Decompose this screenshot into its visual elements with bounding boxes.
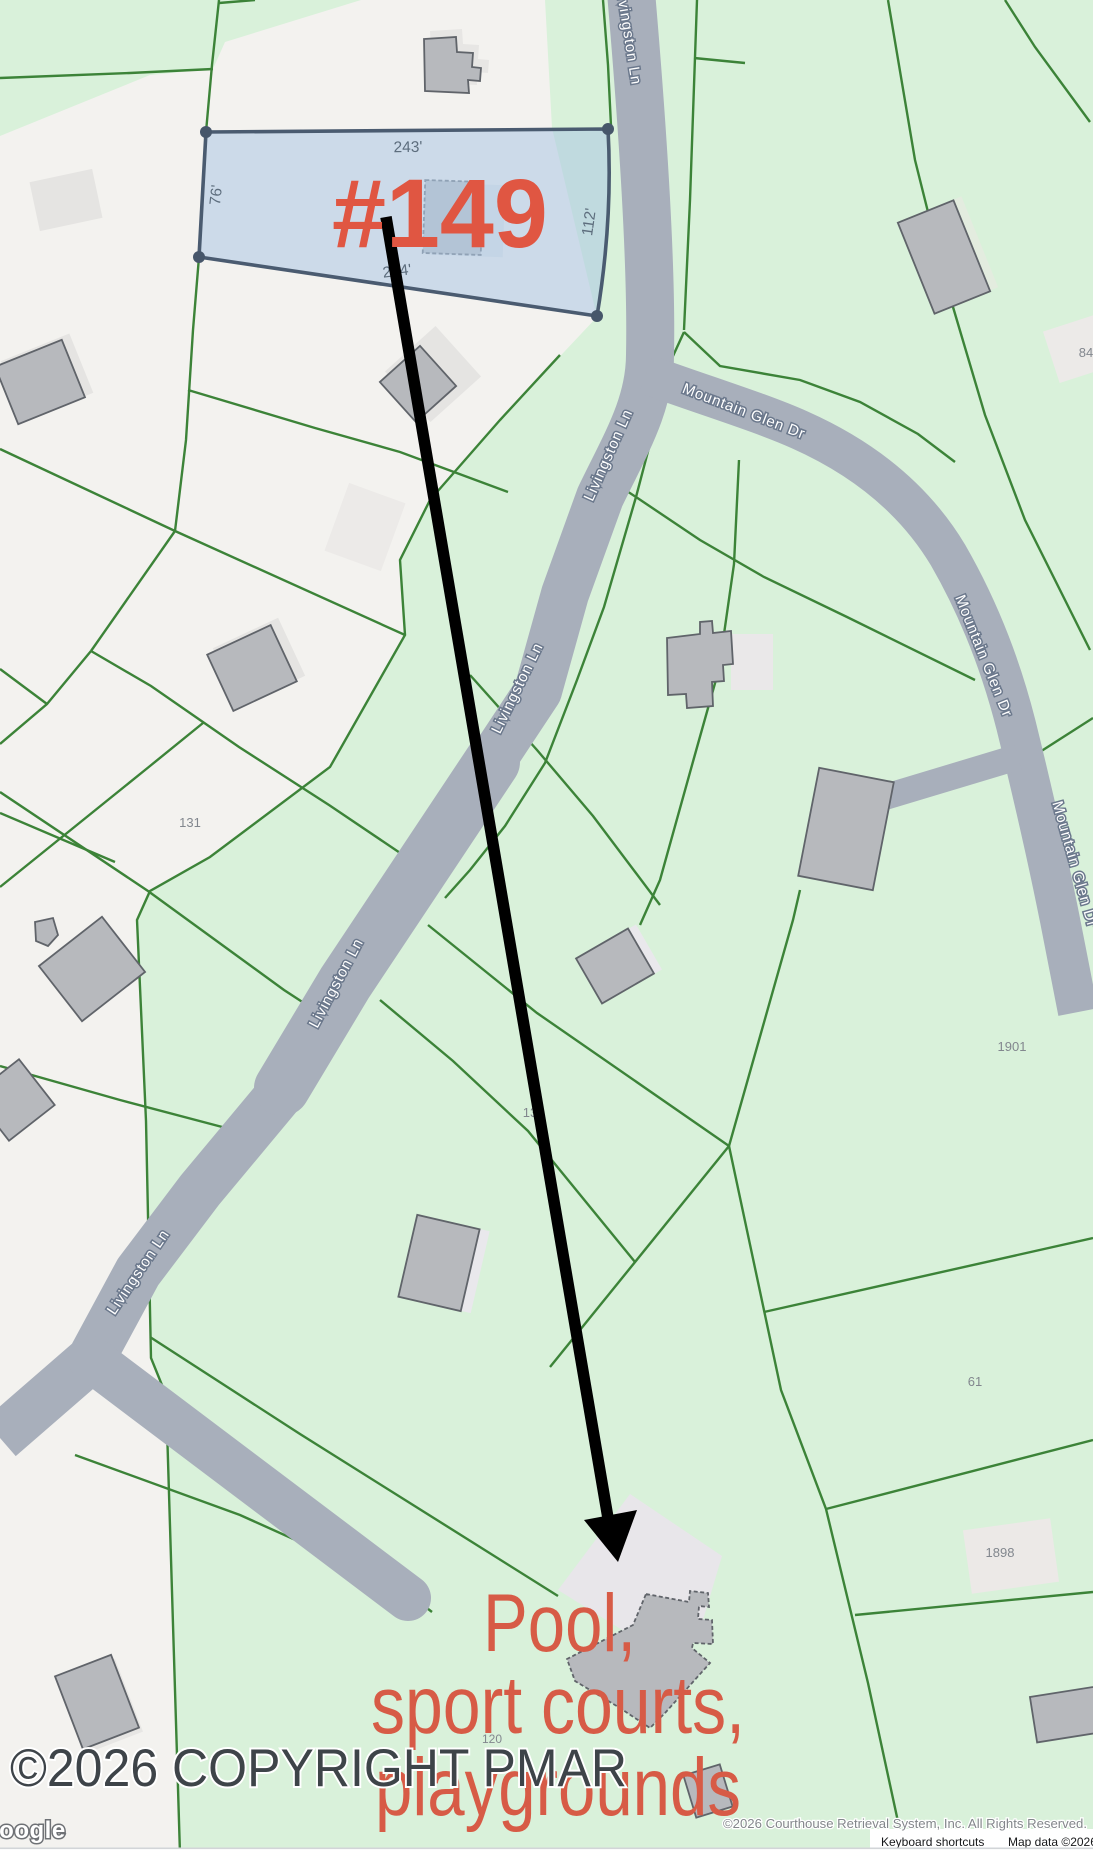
svg-text:61: 61 <box>968 1374 982 1389</box>
svg-text:1901: 1901 <box>998 1039 1027 1054</box>
svg-text:©2026 Courthouse Retrieval Sys: ©2026 Courthouse Retrieval System, Inc. … <box>723 1816 1087 1831</box>
svg-text:Map data ©2026: Map data ©2026 <box>1008 1835 1093 1849</box>
svg-text:131: 131 <box>179 815 201 830</box>
svg-text:Google: Google <box>0 1817 66 1844</box>
svg-text:sport courts,: sport courts, <box>371 1660 745 1751</box>
svg-text:#149: #149 <box>332 159 548 268</box>
svg-text:76': 76' <box>207 184 226 206</box>
svg-text:Keyboard shortcuts: Keyboard shortcuts <box>881 1835 984 1849</box>
svg-text:243': 243' <box>393 139 422 157</box>
svg-text:84: 84 <box>1079 345 1093 360</box>
svg-text:©2026 COPYRIGHT PMAR: ©2026 COPYRIGHT PMAR <box>10 1739 627 1798</box>
svg-text:Pool,: Pool, <box>483 1578 636 1669</box>
svg-text:1898: 1898 <box>986 1545 1015 1560</box>
